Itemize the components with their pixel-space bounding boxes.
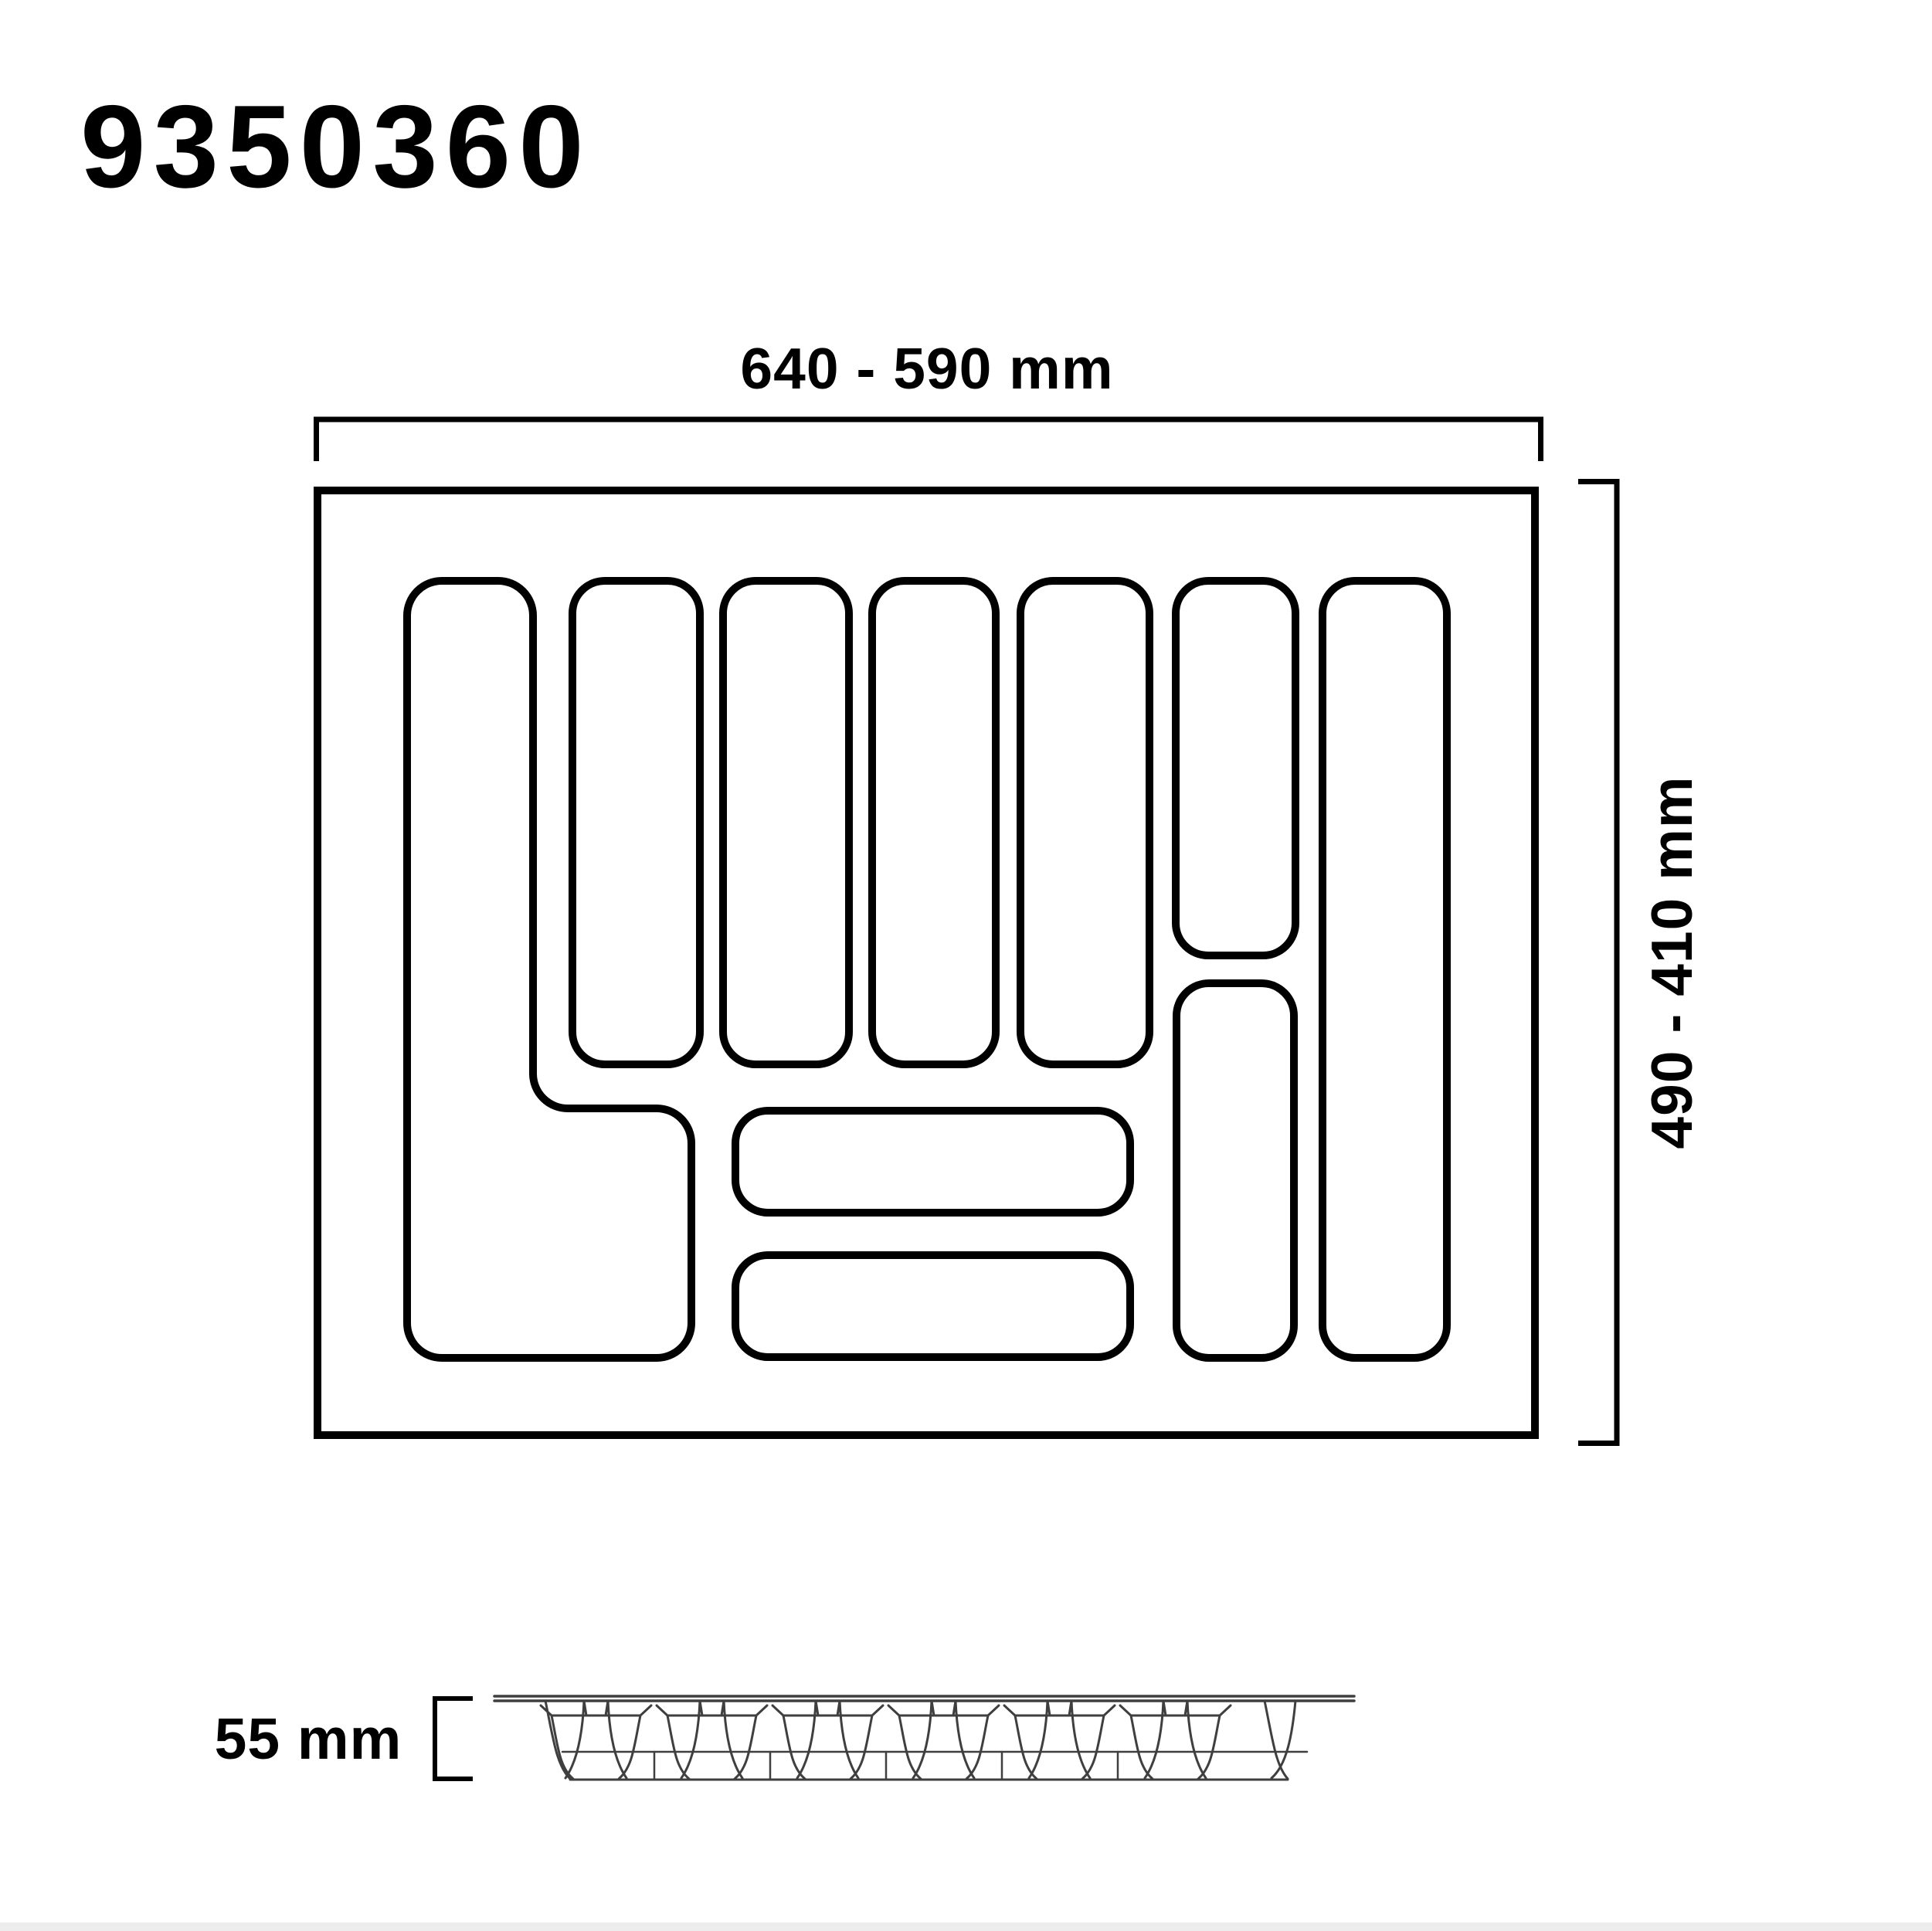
side-view — [494, 1696, 1354, 1780]
top-view: 640 - 590 mm 490 - 410 mm — [314, 336, 1704, 1446]
compartment-l-shape — [407, 581, 691, 1358]
depth-dimension-bracket — [435, 1696, 473, 1781]
width-dimension-label: 640 - 590 mm — [740, 336, 1113, 401]
side-profile-rim — [494, 1696, 1354, 1701]
compartment-slot-6-short — [1176, 581, 1295, 955]
compartment-slot-5 — [1020, 581, 1149, 1064]
width-dimension-bracket — [314, 419, 1543, 461]
depth-dimension-label: 55 mm — [215, 1706, 402, 1771]
compartment-slot-2 — [572, 581, 700, 1064]
side-profile-right-wall — [1265, 1701, 1295, 1779]
tray-outline — [317, 490, 1535, 1435]
compartment-horizontal-lower — [735, 1255, 1130, 1357]
compartment-slot-7-tall — [1323, 581, 1447, 1358]
compartment-slot-4 — [872, 581, 996, 1064]
compartment-slot-3 — [723, 581, 849, 1064]
height-dimension-label: 490 - 410 mm — [1639, 775, 1704, 1149]
page: { "page": { "title": "9350360" }, "top_v… — [0, 0, 1932, 1931]
footer-strip — [0, 1923, 1932, 1931]
height-dimension-bracket — [1578, 479, 1617, 1446]
compartment-horizontal-upper — [735, 1111, 1130, 1213]
technical-drawing: 640 - 590 mm 490 - 410 mm 55 mm — [0, 0, 1932, 1931]
compartment-slot-8-lower — [1177, 983, 1294, 1358]
tray-compartments — [407, 581, 1447, 1358]
side-profile-ribs — [654, 1752, 1118, 1779]
